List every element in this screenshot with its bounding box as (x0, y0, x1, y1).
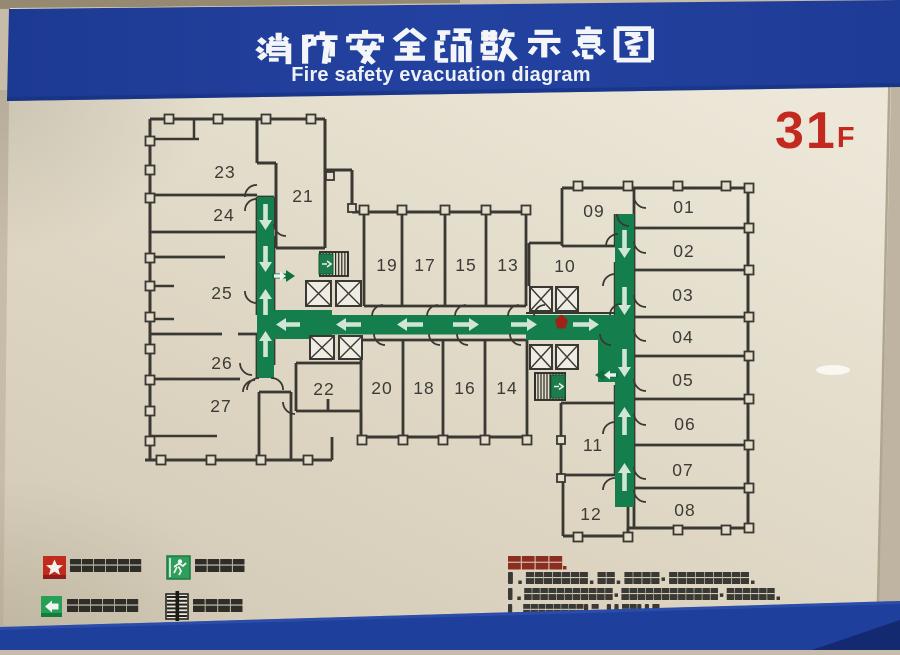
svg-text:10: 10 (554, 256, 575, 276)
svg-text:05: 05 (672, 370, 693, 390)
svg-text:07: 07 (672, 460, 693, 480)
svg-text:08: 08 (674, 500, 695, 520)
svg-text:19: 19 (376, 255, 397, 275)
svg-text:03: 03 (672, 285, 693, 305)
svg-text:02: 02 (673, 241, 694, 261)
svg-text:09: 09 (583, 201, 604, 221)
svg-text:22: 22 (313, 379, 334, 399)
svg-text:13: 13 (497, 255, 518, 275)
svg-text:01: 01 (673, 197, 694, 217)
svg-text:06: 06 (674, 414, 695, 434)
svg-text:24: 24 (213, 205, 234, 225)
svg-text:27: 27 (210, 396, 231, 416)
svg-text:04: 04 (672, 327, 693, 347)
svg-text:25: 25 (211, 283, 232, 303)
svg-text:23: 23 (214, 162, 235, 182)
svg-text:14: 14 (496, 378, 517, 398)
svg-text:18: 18 (413, 378, 434, 398)
svg-text:11: 11 (583, 435, 603, 455)
svg-text:16: 16 (454, 378, 475, 398)
svg-text:26: 26 (211, 353, 232, 373)
svg-text:21: 21 (292, 186, 313, 206)
svg-text:12: 12 (580, 504, 601, 524)
svg-text:17: 17 (414, 255, 435, 275)
svg-text:15: 15 (455, 255, 476, 275)
svg-text:Fire safety evacuation diagram: Fire safety evacuation diagram (291, 64, 590, 86)
svg-text:20: 20 (371, 378, 392, 398)
